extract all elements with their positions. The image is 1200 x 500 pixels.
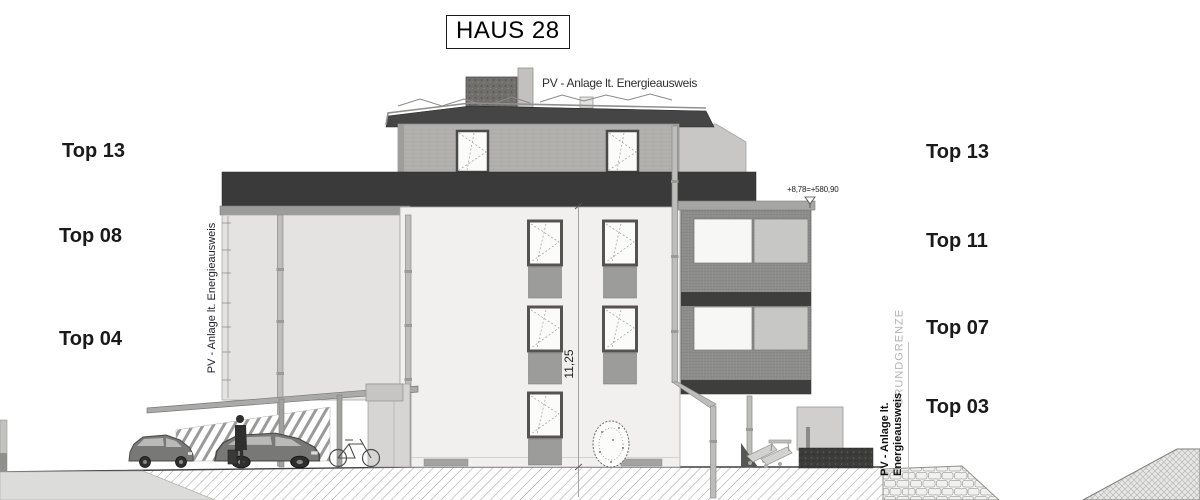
unit-label-left-top13: Top 13 — [62, 140, 125, 163]
left-cap-strip — [220, 206, 410, 215]
facade-window — [529, 393, 562, 437]
facade-window — [604, 221, 637, 265]
balcony-cap — [678, 201, 815, 210]
balcony-wing — [678, 197, 815, 394]
penthouse-window — [457, 131, 488, 172]
facade-window — [604, 307, 637, 351]
shrub — [593, 421, 629, 467]
entrance-step — [621, 459, 662, 466]
terrace-pole — [806, 427, 810, 450]
spandrel-panel — [529, 267, 562, 298]
spandrel-panel — [529, 439, 562, 465]
balcony-opening-light — [694, 307, 752, 350]
main-facade — [400, 207, 680, 467]
unit-label-right-top13: Top 13 — [926, 141, 989, 164]
unit-label-right-top07: Top 07 — [926, 317, 989, 340]
unit-label-left-top08: Top 08 — [59, 225, 122, 248]
penthouse-storey — [398, 124, 679, 176]
spandrel-panel — [604, 267, 637, 298]
spandrel-panel — [529, 353, 562, 384]
elevation-sheet: HAUS 28 PV - Anlage lt. Energieausweis T… — [0, 0, 1200, 500]
level-annotation: +8,78=+580,90 — [787, 185, 838, 194]
terrace-wall-box — [797, 407, 843, 450]
penthouse-window — [607, 131, 638, 172]
spandrel-panel — [604, 353, 637, 384]
pv-panels-icon — [540, 94, 672, 102]
unit-label-right-top03: Top 03 — [926, 396, 989, 419]
height-dimension: 11,25 — [562, 344, 576, 384]
balcony-slab — [681, 380, 811, 394]
left-pv-annotation: PV - Anlage lt. Energieausweis — [206, 213, 220, 383]
sheet-title: HAUS 28 — [446, 15, 570, 49]
balcony-opening-shaded — [754, 219, 808, 263]
facade-window — [529, 221, 562, 265]
penthouse-corner-left — [398, 124, 404, 176]
roof-pv-annotation: PV - Anlage lt. Energieausweis — [542, 76, 697, 90]
unit-label-left-top04: Top 04 — [59, 328, 122, 351]
entrance-step — [424, 459, 468, 466]
right-pv-line1: PV - Anlage lt. — [879, 386, 892, 476]
facade-window — [529, 307, 562, 351]
left-edge-wall-base — [0, 453, 7, 471]
left-wing-wall — [222, 215, 400, 400]
terrace — [741, 407, 873, 468]
roof-flue — [518, 68, 533, 109]
utility-box — [366, 384, 403, 401]
hedge — [799, 448, 873, 468]
elevation-drawing — [0, 0, 1200, 500]
unit-label-right-top11: Top 11 — [926, 230, 988, 253]
balcony-slab — [681, 292, 811, 306]
terrain-slope — [1083, 449, 1200, 500]
right-pv-annotation: PV - Anlage lt. Energieausweis — [879, 386, 907, 476]
balcony-opening-shaded — [754, 307, 808, 350]
right-pv-line2: Energieausweis — [892, 386, 905, 476]
balcony-opening-light — [694, 219, 752, 263]
